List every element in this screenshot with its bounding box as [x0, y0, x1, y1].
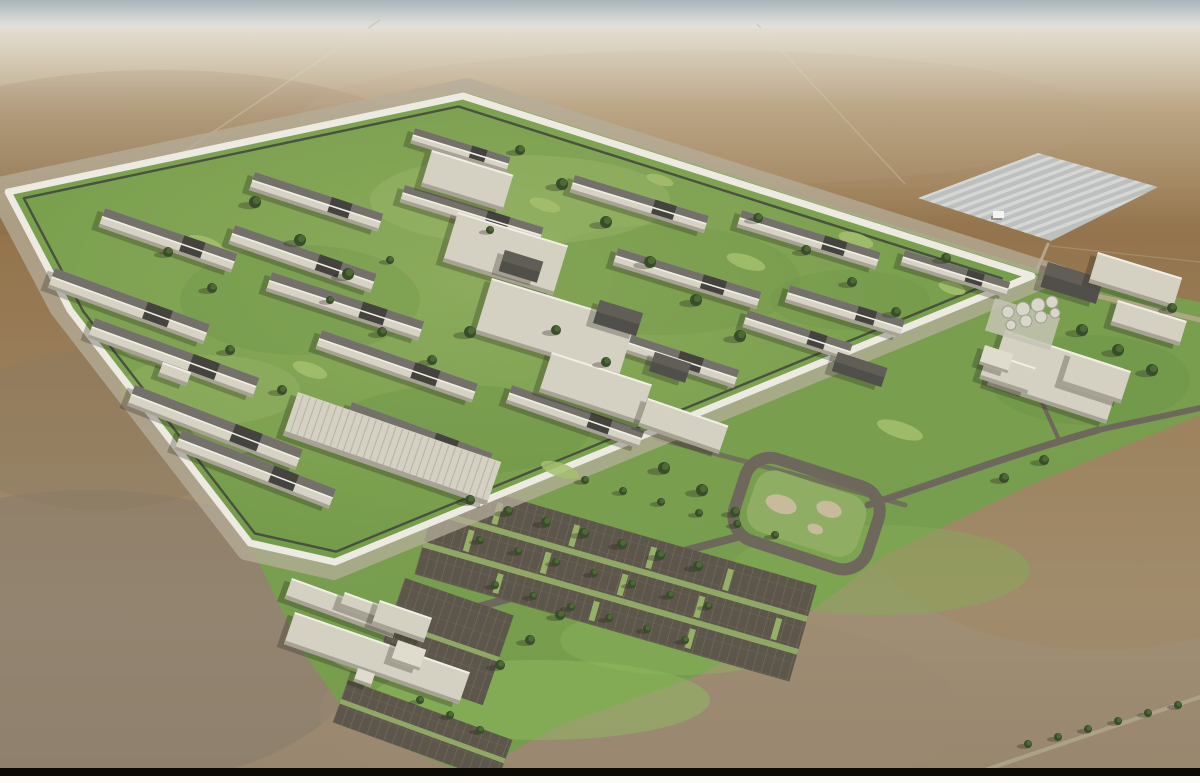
water-tank: [1006, 320, 1016, 330]
frame-black-rule: [0, 768, 1200, 776]
rendered-aerial-image: Aerial 3D architectural rendering of a l…: [0, 0, 1200, 783]
bottom-frame: [0, 768, 1200, 783]
water-tank: [1002, 306, 1014, 318]
water-tank: [1050, 308, 1060, 318]
water-tank: [1020, 315, 1032, 327]
maintenance-building: [993, 211, 1004, 218]
water-tank: [1046, 296, 1058, 308]
frame-white-margin: [0, 776, 1200, 783]
water-tank: [1035, 311, 1047, 323]
facility-rendering: Aerial 3D architectural rendering of a l…: [0, 0, 1200, 783]
water-tank: [1016, 302, 1030, 316]
water-tank: [1031, 298, 1045, 312]
